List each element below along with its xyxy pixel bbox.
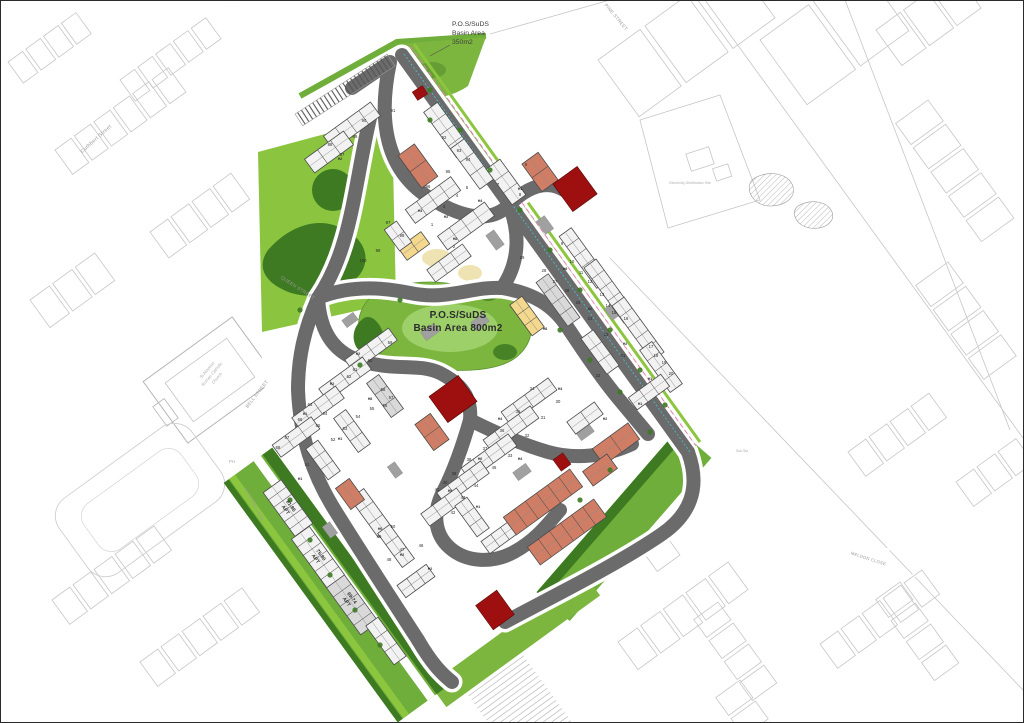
- plot-number: 38: [467, 457, 472, 462]
- background-building: [140, 649, 175, 686]
- tree: [577, 497, 582, 502]
- tree: [617, 389, 622, 394]
- background-building: [911, 393, 946, 430]
- basin-350-line1: P.O.S/SuDS: [452, 21, 489, 28]
- plot-number: 32: [525, 433, 530, 438]
- background-building: [848, 439, 883, 476]
- background-building: [998, 439, 1024, 476]
- tree: [557, 327, 562, 332]
- plot-number: 31: [541, 415, 546, 420]
- survey-line: [480, 672, 535, 712]
- plot-number: 21: [621, 353, 626, 358]
- background-building: [61, 13, 91, 45]
- background-building: [94, 557, 129, 594]
- x: [915, 0, 1023, 120]
- plot-number: 37: [483, 446, 488, 451]
- tree: [547, 247, 552, 252]
- plot-number: 10: [570, 259, 575, 264]
- house-type-label: H8: [453, 237, 458, 241]
- tree: [647, 429, 652, 434]
- survey-line: [498, 696, 553, 723]
- background-building: [869, 424, 904, 461]
- plot-number: 41: [435, 487, 440, 492]
- background-building: [922, 645, 959, 680]
- plot-number: 11: [579, 270, 584, 275]
- background-building: [731, 701, 768, 723]
- plot-number: 63: [308, 402, 313, 407]
- x: [0, 260, 140, 400]
- background-building: [645, 0, 728, 83]
- house-type-label: H4: [478, 199, 483, 203]
- background-building: [956, 469, 991, 506]
- house-type-label: H1: [338, 437, 343, 441]
- plot-number: 59: [388, 340, 393, 345]
- house-type-label: H2: [603, 417, 608, 421]
- house-type-label: H6: [378, 527, 383, 531]
- plot-number: 46: [419, 543, 424, 548]
- house-type-label: H8: [448, 489, 453, 493]
- background-building: [171, 204, 208, 243]
- background-building: [890, 409, 925, 446]
- house-type-label: H2: [338, 157, 343, 161]
- background-building: [113, 96, 147, 132]
- background-building: [224, 588, 259, 625]
- house-type-label: H4: [518, 457, 523, 461]
- plot-number: 89: [353, 134, 358, 139]
- house-type-label: H1: [638, 402, 643, 406]
- plot-number: 60: [368, 358, 373, 363]
- house-type-label: H6: [588, 307, 593, 311]
- background-building: [44, 26, 74, 58]
- tree: [377, 642, 382, 647]
- plot-number: 36: [500, 428, 505, 433]
- plot-number: 55: [370, 406, 375, 411]
- background-building: [709, 562, 748, 604]
- plot-number: 67: [285, 435, 290, 440]
- plot-number: 17: [649, 344, 654, 349]
- plot-number: 65: [316, 423, 321, 428]
- house-type-label: H8: [563, 267, 568, 271]
- tree: [587, 357, 592, 362]
- background-street-inner: [20, 0, 235, 215]
- background-building-row: [120, 18, 221, 101]
- house-type-label: H6: [478, 457, 483, 461]
- place-label-line: PH: [229, 459, 235, 464]
- background-building-row: [716, 680, 784, 723]
- background-building: [598, 29, 681, 116]
- background-building: [26, 38, 56, 70]
- house-type-label: H4: [418, 209, 423, 213]
- plot-number: 14: [606, 303, 611, 308]
- tree: [357, 362, 362, 367]
- tree: [517, 207, 522, 212]
- house-type-label: H2: [400, 553, 405, 557]
- plot-number: 94: [466, 157, 471, 162]
- background-building: [52, 587, 87, 624]
- plot-number: 34: [530, 386, 535, 391]
- house-type-label: H4: [558, 387, 563, 391]
- plot-number: 39: [452, 471, 457, 476]
- house-type-label: H2: [356, 352, 361, 356]
- street-name-label: PINE STREET: [603, 3, 628, 32]
- plot-number: 26: [565, 288, 570, 293]
- house-type-label: H2: [444, 215, 449, 219]
- electricity-site-outline: [640, 95, 760, 228]
- background-building: [75, 253, 114, 295]
- tree: [487, 167, 492, 172]
- plot-number: 22: [596, 373, 601, 378]
- plot-number: 53: [343, 426, 348, 431]
- background-building-row: [820, 570, 940, 668]
- plot-number: 43: [461, 495, 466, 500]
- house-type-label: H8: [368, 397, 373, 401]
- background-building-row: [8, 13, 91, 83]
- background-building: [192, 189, 229, 228]
- plot-number: 48: [387, 557, 392, 562]
- plot-number: 64: [323, 411, 328, 416]
- plot-number: 50: [391, 524, 396, 529]
- place-label: PH: [229, 459, 235, 464]
- background-building: [150, 219, 187, 258]
- background-building: [931, 149, 979, 194]
- background-building: [904, 570, 939, 607]
- plot-number: 96: [426, 184, 431, 189]
- plot-number: 90: [362, 118, 367, 123]
- house-type-label: H1: [518, 187, 523, 191]
- tree: [577, 287, 582, 292]
- plot-number: 30: [556, 399, 561, 404]
- plot-number: 16: [624, 316, 629, 321]
- house-type-label: H2: [623, 342, 628, 346]
- background-building: [203, 603, 238, 640]
- house-type-label: H1: [648, 377, 653, 381]
- survey-line: [492, 688, 547, 723]
- plot-number: 100: [360, 258, 368, 263]
- background-building: [891, 603, 928, 638]
- plot-number: 33: [508, 453, 513, 458]
- plot-number: 66: [298, 417, 303, 422]
- road: [318, 288, 502, 298]
- tree: [397, 297, 402, 302]
- plot-number: 99: [376, 248, 381, 253]
- background-building: [30, 286, 69, 328]
- background-building-row: [848, 393, 947, 476]
- plot-number: 47: [400, 547, 405, 552]
- house-type-label: H1: [476, 505, 481, 509]
- background-building: [906, 624, 943, 659]
- background-building: [161, 634, 196, 671]
- plot-number: 40: [443, 480, 448, 485]
- plot-number: 18: [654, 353, 659, 358]
- background-building-row: [598, 0, 775, 117]
- plot-number: 54: [356, 414, 361, 419]
- basin-800-line1: P.O.S/SuDS: [430, 310, 487, 321]
- tree: [457, 127, 462, 132]
- plot-number: 12: [588, 279, 593, 284]
- plot-number: 15: [612, 310, 617, 315]
- background-building: [213, 173, 250, 212]
- background-building: [55, 138, 89, 174]
- plot-number: 57: [389, 395, 394, 400]
- house-type-label: H4: [498, 417, 503, 421]
- background-building-row: [30, 253, 115, 328]
- basin-800-line2: Basin Area 800m2: [414, 323, 503, 334]
- background-building: [931, 0, 981, 26]
- background-building: [904, 0, 954, 46]
- tree-hatch-blob: [749, 174, 793, 206]
- house-type-label: H2: [428, 567, 433, 571]
- background-building: [692, 0, 775, 48]
- tree: [307, 537, 312, 542]
- tree: [297, 307, 302, 312]
- tree: [662, 402, 667, 407]
- background-building-row: [52, 526, 172, 624]
- background-building: [760, 5, 856, 105]
- background-building-row: [896, 100, 1014, 242]
- tree-hatch-blob: [794, 202, 832, 229]
- background-building: [182, 619, 217, 656]
- plot-number: 13: [600, 292, 605, 297]
- survey-line: [483, 676, 538, 716]
- plot-number: 23: [604, 332, 609, 337]
- site-plan-page: P.O.S/SuDS Basin Area 350m2 P.O.S/SuDS B…: [0, 0, 1024, 723]
- house-type-label: H8: [543, 327, 548, 331]
- plot-number: 51: [305, 462, 310, 467]
- plot-number: 95: [446, 169, 451, 174]
- house-type-label: H2: [330, 382, 335, 386]
- plot-number: 98: [400, 233, 405, 238]
- background-building: [136, 526, 171, 563]
- background-building-row: [916, 262, 1017, 379]
- plot-number: 29: [520, 255, 525, 260]
- plot-number: 93: [457, 148, 462, 153]
- plot-number: 97: [386, 220, 391, 225]
- plot-number: 52: [331, 437, 336, 442]
- place-label-line: Sub Sta: [736, 449, 748, 453]
- background-building-row: [694, 602, 777, 701]
- background-building: [8, 51, 38, 83]
- background-building: [966, 197, 1014, 242]
- background-building: [913, 124, 961, 169]
- plot-number: 44: [474, 483, 479, 488]
- place-label: Electricity Distribution Site: [669, 181, 711, 185]
- background-building-row: [956, 439, 1024, 507]
- tree: [427, 117, 432, 122]
- plot-number: 20: [669, 371, 674, 376]
- house-type-label: H1: [303, 412, 308, 416]
- basin-350-line2: Basin Area: [452, 30, 485, 37]
- place-label: Sub Sta: [736, 449, 748, 453]
- plot-number: 56: [383, 403, 388, 408]
- background-building-row: [140, 588, 260, 686]
- background-building-row: [150, 173, 250, 258]
- house-type-label: H1: [298, 477, 303, 481]
- x: [868, 460, 1024, 580]
- background-building: [709, 623, 746, 658]
- plot-number: 27: [553, 279, 558, 284]
- plot-number: 88: [328, 142, 333, 147]
- x: [700, 568, 925, 723]
- tree: [427, 87, 432, 92]
- plot-number: 25: [576, 300, 581, 305]
- plot-number: 91: [391, 108, 396, 113]
- background-building: [977, 454, 1012, 491]
- plot-number: 62: [347, 374, 352, 379]
- plot-number: 35: [516, 409, 521, 414]
- place-label-line: Electricity Distribution Site: [669, 181, 711, 185]
- plot-number: 19: [662, 360, 667, 365]
- background-building-row: [760, 0, 909, 105]
- basin-350-line3: 350m2: [452, 39, 473, 46]
- tree: [607, 467, 612, 472]
- playing-field-outline: [47, 415, 234, 586]
- background-building: [73, 572, 108, 609]
- background-building: [724, 644, 761, 679]
- plot-number: 68: [276, 445, 281, 450]
- plot-number: 92: [442, 135, 447, 140]
- development-site: [224, 34, 712, 722]
- site-plan-drawing: P.O.S/SuDS Basin Area 350m2 P.O.S/SuDS B…: [0, 0, 1024, 723]
- plot-number: 24: [588, 316, 593, 321]
- background-building: [53, 269, 92, 311]
- survey-line: [486, 680, 541, 720]
- plot-number: 45: [492, 465, 497, 470]
- tree: [327, 572, 332, 577]
- background-building: [949, 173, 997, 218]
- plot-number: 28: [542, 268, 547, 273]
- tree: [352, 607, 357, 612]
- background-building: [896, 100, 944, 145]
- plot-number: 61: [353, 367, 358, 372]
- plot-number: 58: [381, 387, 386, 392]
- background-building: [115, 541, 150, 578]
- plot-number: 49: [377, 534, 382, 539]
- tree: [637, 367, 642, 372]
- plot-number: 42: [451, 510, 456, 515]
